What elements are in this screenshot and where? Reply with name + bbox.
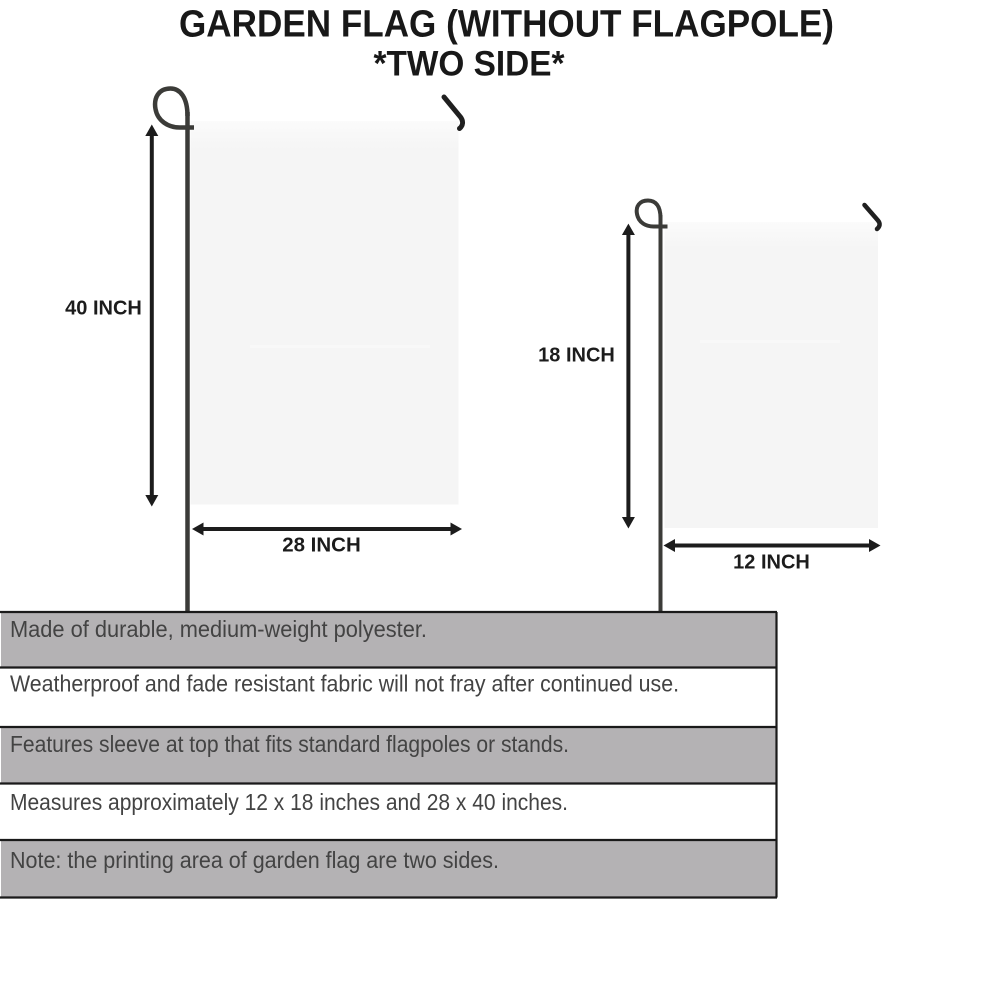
svg-text:*TWO SIDE*: *TWO SIDE* <box>374 45 565 84</box>
svg-text:Measures approximately 12 x 18: Measures approximately 12 x 18 inches an… <box>10 789 568 815</box>
svg-text:Note: the printing area of gar: Note: the printing area of garden flag a… <box>10 847 499 873</box>
svg-text:Features sleeve at top that fi: Features sleeve at top that fits standar… <box>10 731 569 757</box>
svg-text:GARDEN FLAG (WITHOUT FLAGPOLE): GARDEN FLAG (WITHOUT FLAGPOLE) <box>179 4 834 46</box>
svg-text:12 INCH: 12 INCH <box>733 552 810 574</box>
svg-text:28 INCH: 28 INCH <box>282 534 361 557</box>
svg-text:18 INCH: 18 INCH <box>538 345 615 367</box>
svg-text:Weatherproof and fade resistan: Weatherproof and fade resistant fabric w… <box>10 671 679 697</box>
svg-text:Made of durable, medium-weight: Made of durable, medium-weight polyester… <box>10 616 427 642</box>
svg-text:40 INCH: 40 INCH <box>65 298 142 320</box>
